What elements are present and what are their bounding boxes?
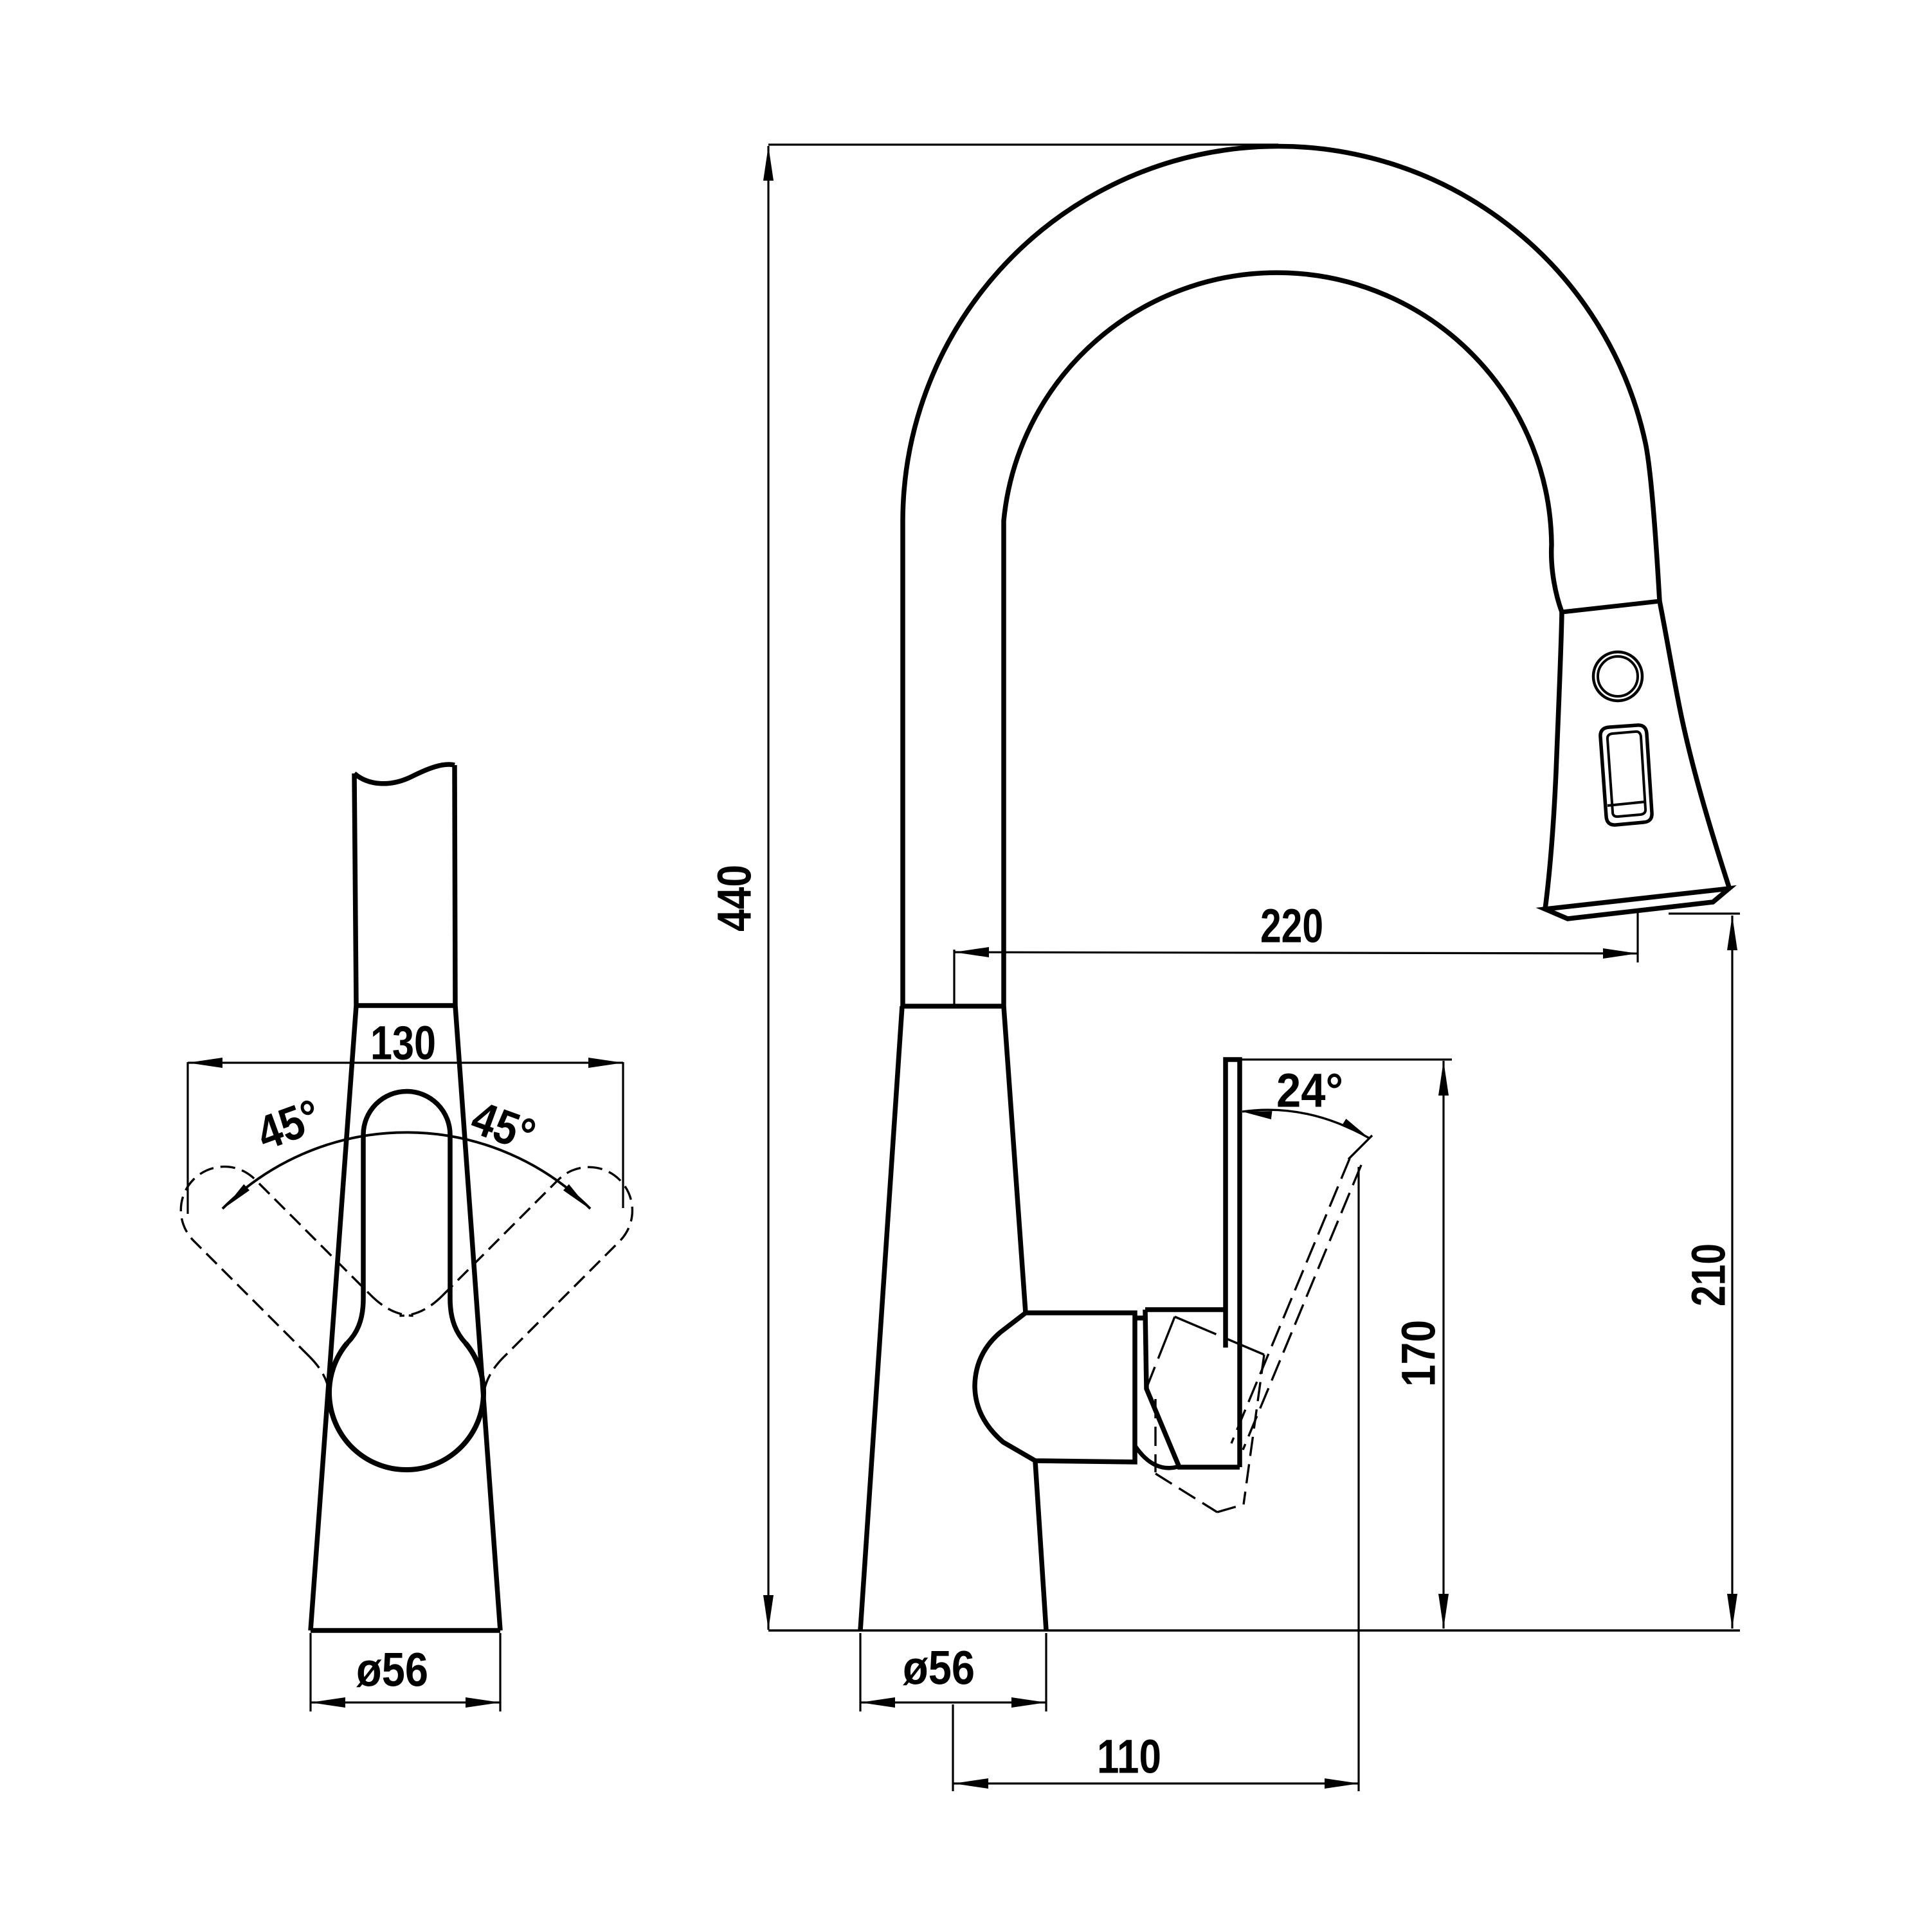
svg-text:130: 130	[370, 1016, 436, 1070]
svg-text:ø56: ø56	[903, 1641, 975, 1695]
svg-text:220: 220	[1260, 899, 1323, 953]
svg-text:24°: 24°	[1276, 1064, 1343, 1117]
svg-text:ø56: ø56	[356, 1643, 428, 1697]
svg-text:440: 440	[708, 865, 761, 932]
svg-text:110: 110	[1097, 1730, 1161, 1783]
svg-text:170: 170	[1392, 1320, 1445, 1387]
svg-text:210: 210	[1682, 1243, 1735, 1306]
